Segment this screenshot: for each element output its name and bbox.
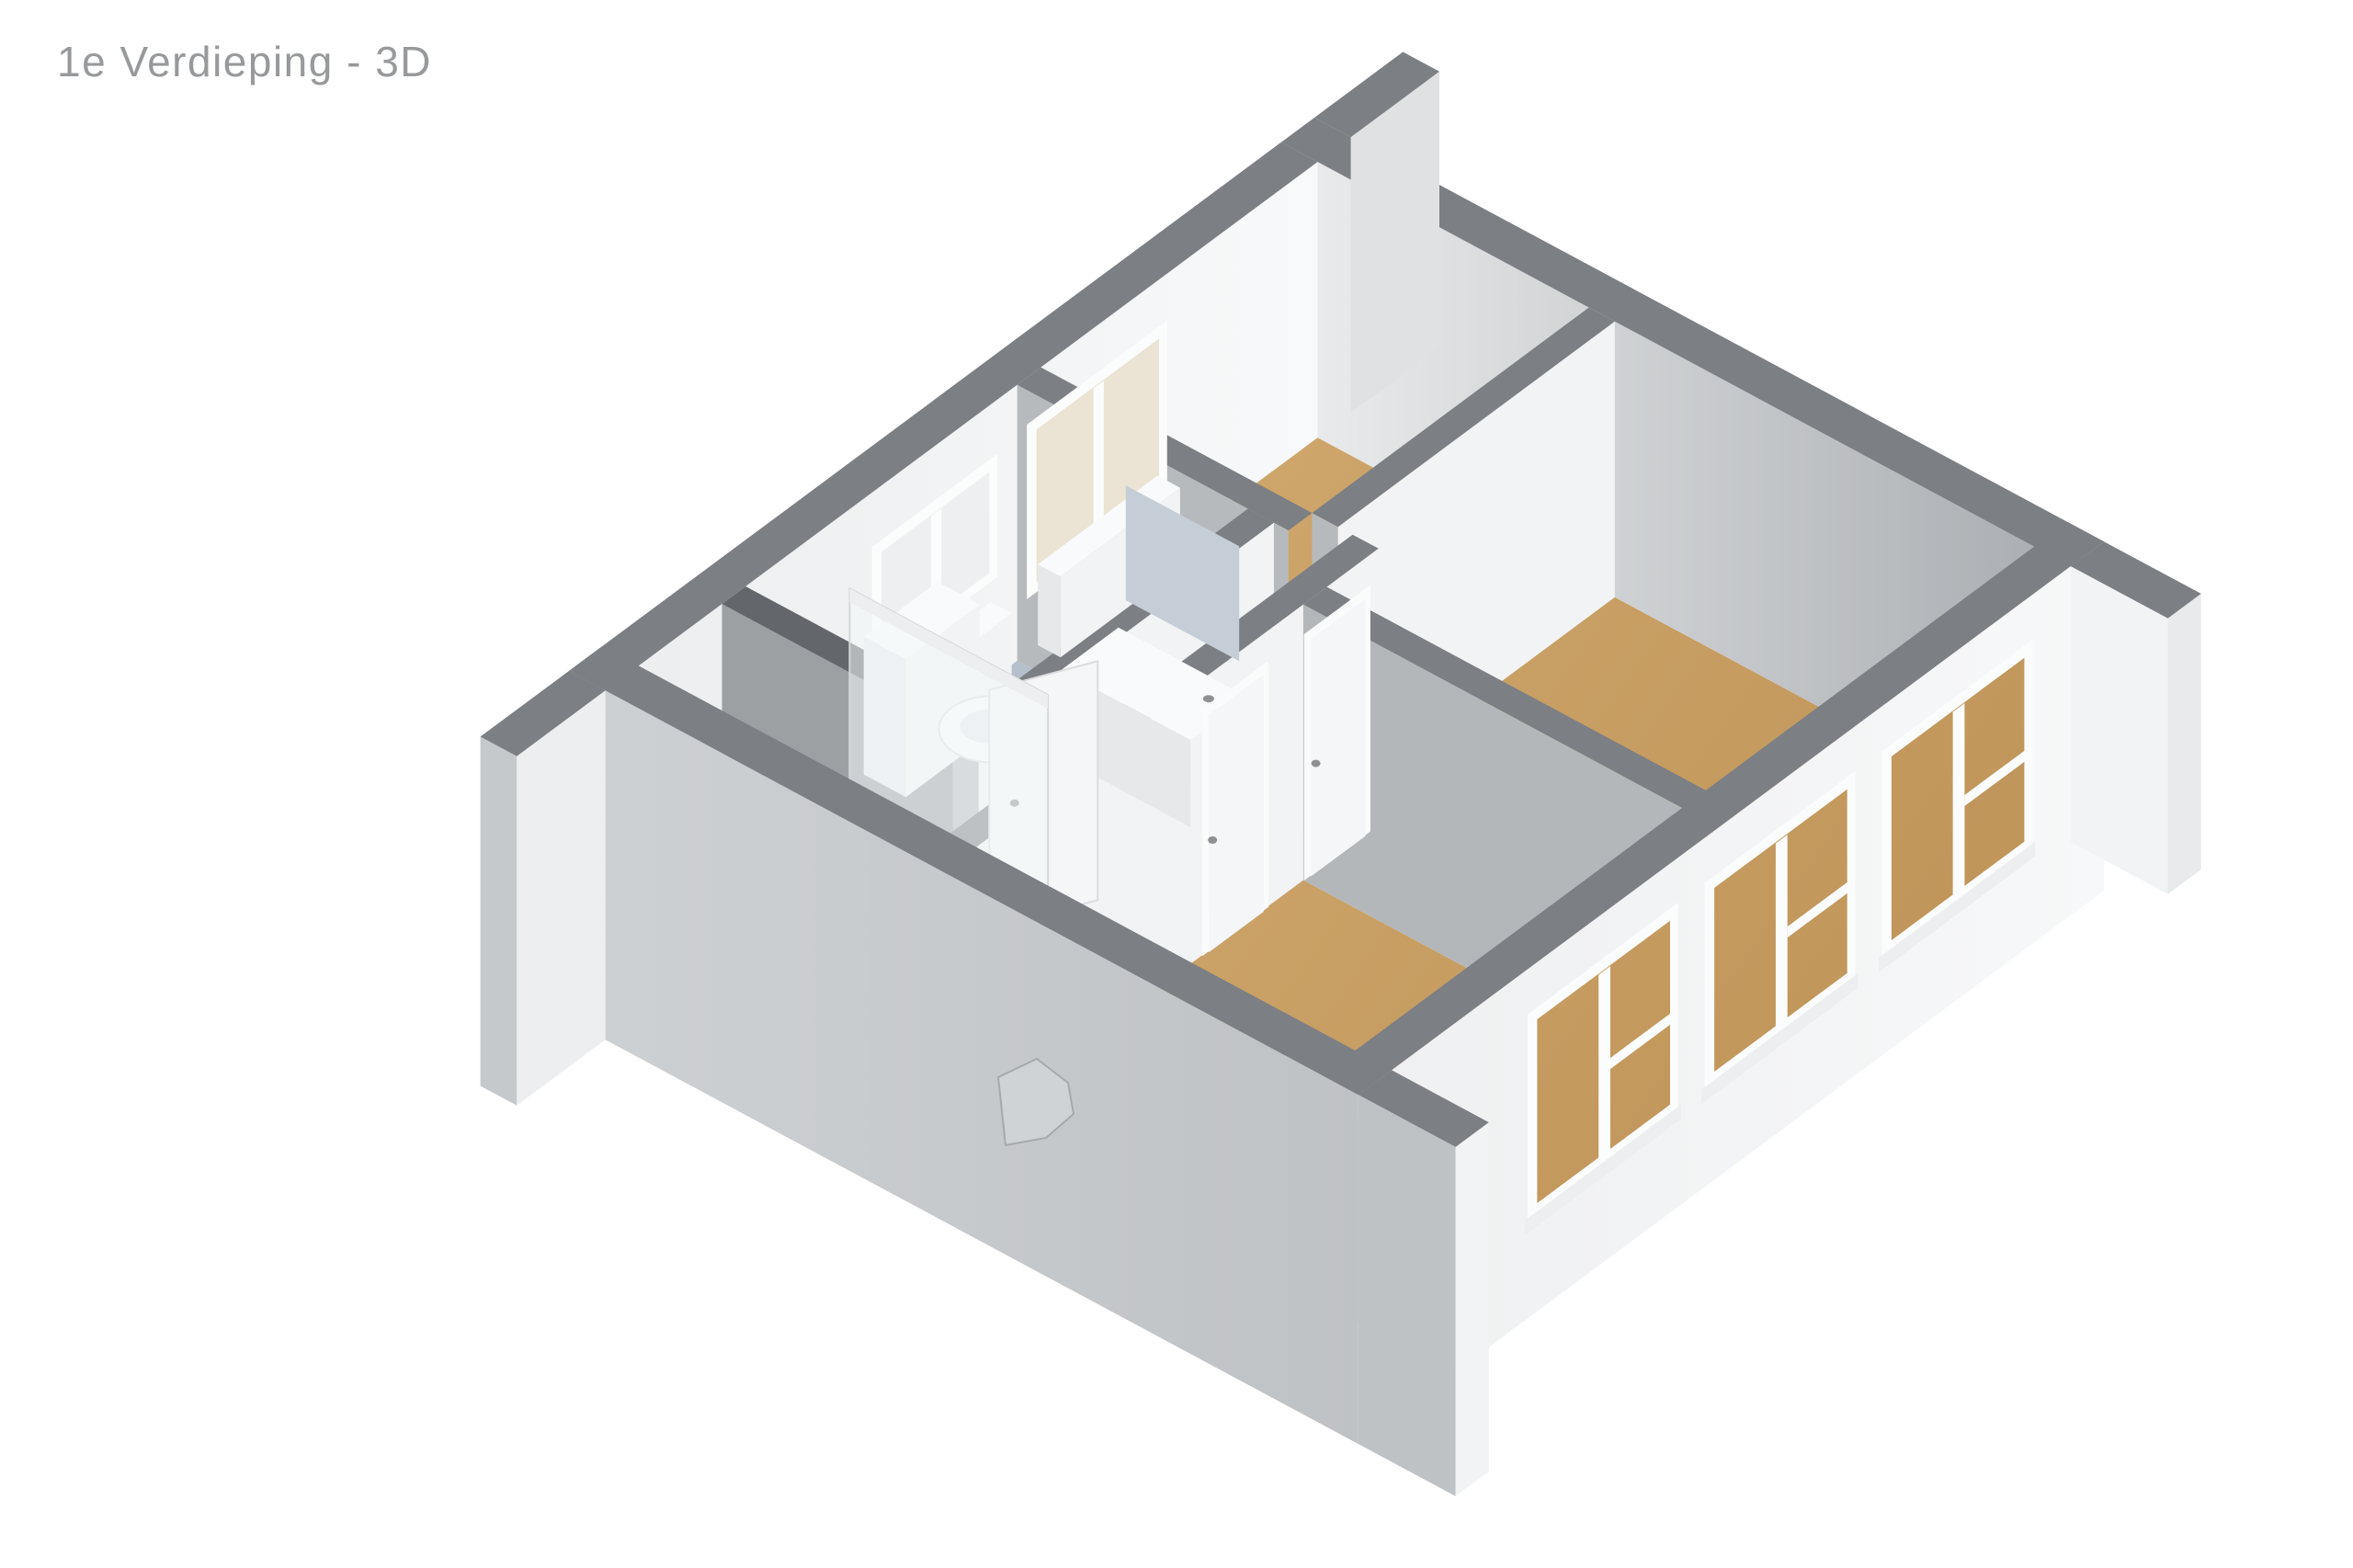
wall-face-se: [1456, 1122, 1489, 1496]
window-mullion: [1776, 835, 1788, 1028]
window-mullion: [1953, 703, 1965, 896]
door-bedroom-bottom: [1209, 675, 1264, 952]
wall-face-sw: [481, 737, 517, 1106]
wall-face-sw: [1358, 1095, 1456, 1496]
window-mullion: [1598, 966, 1610, 1159]
wall-face-se: [2168, 594, 2201, 894]
floorplan-3d-render: [0, 0, 2353, 1568]
wall-face-se: [517, 690, 605, 1106]
door-handle: [1208, 836, 1217, 844]
door-handle: [1312, 760, 1321, 767]
wall-face-sw: [1038, 564, 1061, 657]
wall-face-sw: [2071, 566, 2168, 894]
faucet: [1203, 695, 1214, 702]
door-bedroom-right: [1311, 599, 1366, 877]
page-canvas: 1e Verdieping - 3D: [0, 0, 2353, 1568]
